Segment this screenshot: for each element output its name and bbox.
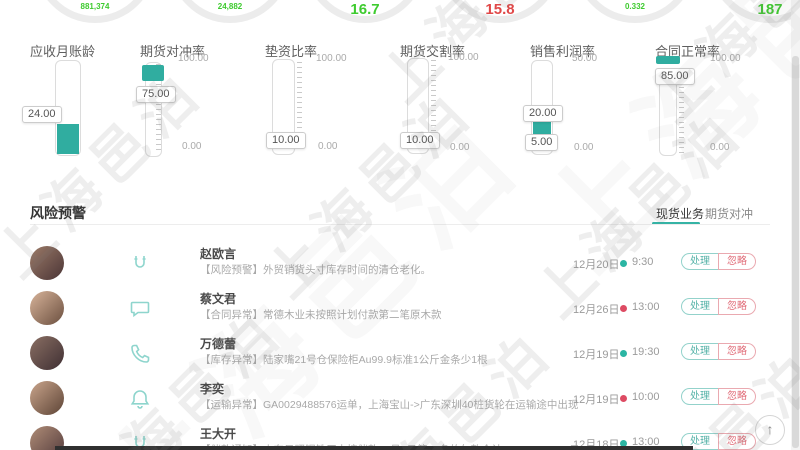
alert-date: 12月26日 (573, 301, 619, 317)
user-name: 王大开 (200, 425, 236, 442)
bell-icon (128, 387, 152, 411)
handle-button[interactable]: 处理 (681, 253, 718, 270)
handle-button[interactable]: 处理 (681, 343, 718, 360)
user-name: 李奕 (200, 380, 224, 397)
alert-date: 12月19日 (573, 391, 619, 407)
alert-message: 【运输异常】GA0029488576运单，上海宝山->广东深圳40桩货轮在运输途… (200, 397, 578, 412)
slider-value-tooltip[interactable]: 24.00 (22, 106, 62, 123)
slider-value-tooltip[interactable]: 10.00 (266, 132, 306, 149)
alert-message: 【库存异常】陆家嘴21号仓保险柜Au99.9标准1公斤金条少1根 (200, 352, 578, 367)
slider-ticks (679, 82, 684, 154)
tab-spot-business[interactable]: 现货业务 (656, 205, 704, 222)
alert-time: 9:30 (632, 256, 653, 268)
slider-handle[interactable] (142, 65, 164, 81)
slider-handle[interactable] (656, 56, 680, 64)
user-name: 蔡文君 (200, 290, 236, 307)
gauge-value: 881,374 (30, 2, 160, 11)
alert-time: 19:30 (632, 346, 660, 358)
slider-max-label: 100.00 (316, 53, 347, 64)
ignore-button[interactable]: 忽略 (718, 253, 756, 270)
slider-max-label: 100.00 (448, 52, 479, 63)
gauge-hedge: 24,882 (165, 0, 295, 26)
slider-track-contract-normal[interactable] (659, 80, 677, 156)
slider-min-label: 0.00 (574, 142, 593, 153)
gauge-contract: 187 (705, 0, 800, 26)
watermark-text: 上海邑泊 (325, 309, 569, 450)
magnet-icon (128, 252, 152, 276)
avatar (30, 381, 64, 415)
slider-min-label: 0.00 (710, 142, 729, 153)
alert-time: 10:00 (632, 391, 660, 403)
slider-min-label: 0.00 (318, 141, 337, 152)
slider-low-tooltip[interactable]: 5.00 (525, 134, 558, 151)
bottom-edge-bar (55, 446, 693, 450)
alert-message: 【合同异常】常德木业未按照计划付款第二笔原木款 (200, 307, 578, 322)
slider-value-tooltip[interactable]: 85.00 (655, 68, 695, 85)
slider-range-fill (533, 121, 551, 134)
tab-futures-hedge[interactable]: 期货对冲 (705, 205, 753, 222)
risk-section-title: 风险预警 (30, 203, 86, 223)
status-dot (620, 395, 627, 402)
ignore-button[interactable]: 忽略 (718, 433, 756, 450)
slider-value-tooltip[interactable]: 10.00 (400, 132, 440, 149)
status-dot (620, 305, 627, 312)
slider-max-label: 100.00 (710, 53, 741, 64)
slider-max-label: 100.00 (178, 53, 209, 64)
slider-min-label: 0.00 (450, 142, 469, 153)
back-to-top-button[interactable]: ↑ (755, 415, 785, 445)
dashboard-page: 881,374 24,882 16.7 15.8 0.332 187 应收月账龄… (0, 0, 800, 450)
section-divider (30, 224, 770, 225)
slider-max-label: 50.00 (572, 53, 597, 64)
status-dot (620, 350, 627, 357)
chat-icon (128, 297, 152, 321)
gauge-receivable: 881,374 (30, 0, 160, 26)
gauge-profit: 0.332 (570, 0, 700, 26)
gauge-value: 0.332 (570, 2, 700, 11)
status-dot (620, 260, 627, 267)
handle-button[interactable]: 处理 (681, 388, 718, 405)
gauge-value: 15.8 (435, 1, 565, 18)
user-name: 万德蕾 (200, 335, 236, 352)
ignore-button[interactable]: 忽略 (718, 343, 756, 360)
ignore-button[interactable]: 忽略 (718, 388, 756, 405)
slider-label-receivable-aging: 应收月账龄 (30, 41, 95, 60)
slider-min-label: 0.00 (182, 141, 201, 152)
scrollbar-thumb[interactable] (792, 56, 799, 448)
gauge-delivery: 15.8 (435, 0, 565, 26)
gauge-value: 16.7 (300, 1, 430, 18)
avatar (30, 291, 64, 325)
gauge-value: 187 (705, 1, 800, 18)
alert-time: 13:00 (632, 301, 660, 313)
avatar (30, 336, 64, 370)
slider-value-tooltip[interactable]: 75.00 (136, 86, 176, 103)
slider-fill (57, 124, 79, 154)
phone-icon (128, 342, 152, 366)
alert-date: 12月20日 (573, 256, 619, 272)
slider-label-advance-ratio: 垫资比率 (265, 41, 317, 60)
handle-button[interactable]: 处理 (681, 298, 718, 315)
gauge-advance: 16.7 (300, 0, 430, 26)
avatar (30, 246, 64, 280)
gauge-value: 24,882 (165, 2, 295, 11)
alert-message: 【风险预警】外贸销货头寸库存时间的清仓老化。 (200, 262, 578, 277)
user-name: 赵欧言 (200, 245, 236, 262)
alert-date: 12月19日 (573, 346, 619, 362)
slider-high-tooltip[interactable]: 20.00 (523, 105, 563, 122)
ignore-button[interactable]: 忽略 (718, 298, 756, 315)
